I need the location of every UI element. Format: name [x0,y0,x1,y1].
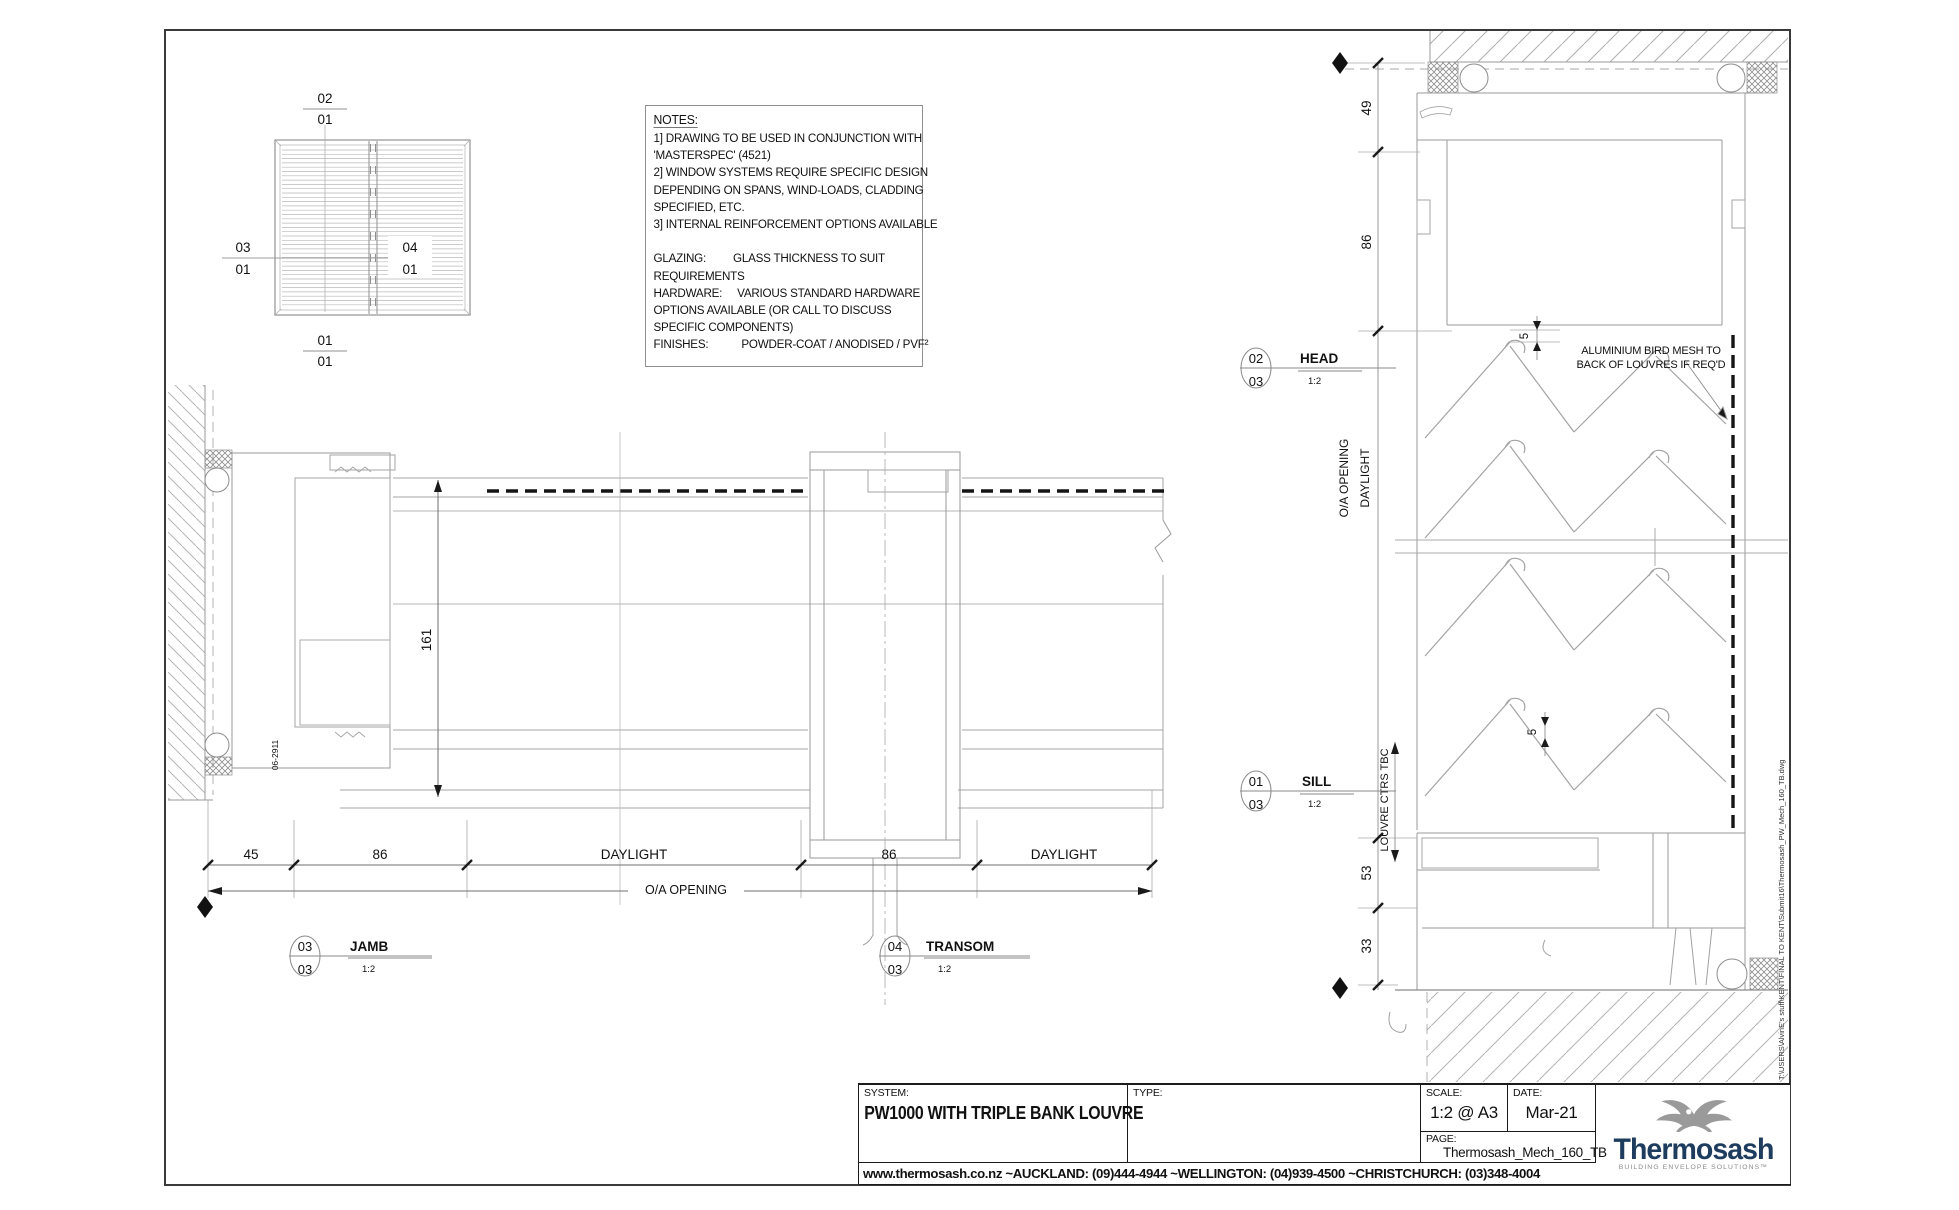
dim-daylight-a: DAYLIGHT [601,847,668,862]
thermosash-logo-text: Thermosash [1601,1137,1786,1163]
transom-callout-sheet: 03 [888,962,902,977]
page-value: Thermosash_Mech_160_TB [1421,1145,1595,1160]
title-block-page-cell: PAGE: Thermosash_Mech_160_TB [1421,1132,1596,1162]
head-callout-scale: 1:2 [1308,376,1321,387]
callout-left-sheet: 01 [235,262,250,277]
head-callout-num: 02 [1249,351,1263,366]
mullion-clip-marks [371,144,376,306]
bird-mesh-note: ALUMINIUM BIRD MESH TO BACK OF LOUVRES I… [1551,345,1751,372]
dim-45: 45 [243,847,258,862]
transom-callout-title: TRANSOM [926,939,994,954]
dim-5-sill: 5 [1527,729,1539,735]
callout-bottom-num: 01 [317,333,332,348]
wall-hatch [168,385,205,800]
callout-bottom-sheet: 01 [317,354,332,369]
title-block-scale-cell: SCALE: 1:2 @ A3 [1421,1085,1508,1132]
datum-diamond [1332,977,1348,999]
elevation-view [222,125,470,315]
page-label: PAGE: [1421,1132,1595,1145]
plan-detail-view [168,385,1171,1005]
title-block-date-cell: DATE: Mar-21 [1508,1085,1596,1132]
head-callout-sheet: 03 [1249,374,1263,389]
file-path-text: T:\USERS\AlvinE's stuff\KENT\FINAL TO KE… [1777,735,1786,1080]
type-label: TYPE: [1128,1085,1420,1099]
sill-callout: 01 03 SILL 1:2 [1240,771,1396,812]
title-block-logo-cell: Thermosash BUILDING ENVELOPE SOLUTIONS™ [1596,1085,1791,1185]
label-louvre-ctrs: LOUVRE CTRS TBC [1379,748,1391,851]
jamb-callout-title: JAMB [350,939,389,954]
transom-callout-num: 04 [888,939,902,954]
slab-hatch-bottom [1427,992,1788,1082]
callout-left-num: 03 [235,240,250,255]
sealant-hatch [205,450,232,468]
sill-callout-num: 01 [1249,774,1263,789]
jamb-frame [232,453,395,768]
transom-callout-scale: 1:2 [938,964,951,975]
dim-86-section: 86 [1359,234,1374,249]
scale-value: 1:2 @ A3 [1421,1099,1507,1123]
datum-diamond [197,896,213,918]
backer-rod [205,468,229,492]
slab-hatch-top [1430,31,1788,62]
louvre-blades [1425,340,1726,796]
louvre-bank-lines [340,478,1171,808]
date-value: Mar-21 [1508,1099,1595,1123]
transom-callout: 04 03 TRANSOM 1:2 [879,936,1030,977]
jamb-callout: 03 03 JAMB 1:2 [289,936,432,977]
dim-5-head: 5 [1519,333,1531,339]
sill-callout-title: SILL [1302,774,1331,789]
plan-dimensions: 45 86 DAYLIGHT 86 DAYLIGHT O/A OPENING 1… [197,480,1157,918]
system-label: SYSTEM: [859,1085,1127,1099]
jamb-callout-scale: 1:2 [362,964,375,975]
jamb-callout-num: 03 [298,939,312,954]
section-detail-view [1345,31,1788,1082]
thermosash-bird-icon [1649,1088,1739,1132]
backer-rod [205,733,229,757]
head-callout-title: HEAD [1300,351,1339,366]
title-block-footer-cell: www.thermosash.co.nz ~AUCKLAND: (09)444-… [859,1162,1596,1185]
system-value: PW1000 WITH TRIPLE BANK LOUVRE [859,1099,1095,1124]
title-block-type-cell: TYPE: . [1128,1085,1421,1162]
elevation-callouts: 02 01 03 01 04 01 01 01 [235,91,418,369]
dim-33: 33 [1359,938,1374,953]
label-oa-opening-v: O/A OPENING [1337,439,1351,518]
head-callout: 02 03 HEAD 1:2 [1240,348,1396,389]
callout-top-num: 02 [317,91,332,106]
title-block-system-cell: SYSTEM: PW1000 WITH TRIPLE BANK LOUVRE [859,1085,1128,1162]
part-label: 06-2911 [270,739,280,770]
callout-right-sheet: 01 [402,262,417,277]
dim-86a: 86 [372,847,387,862]
sill-callout-sheet: 03 [1249,797,1263,812]
callout-top-sheet: 01 [317,112,332,127]
jamb-callout-sheet: 03 [298,962,312,977]
dim-oa-opening: O/A OPENING [645,883,727,897]
sealant-hatch [205,757,232,775]
date-label: DATE: [1508,1085,1595,1099]
dim-86b: 86 [881,847,896,862]
dim-161: 161 [419,629,434,652]
label-daylight-v: DAYLIGHT [1358,448,1372,508]
drawing-sheet: 02 01 03 01 04 01 01 01 [0,0,1959,1210]
section-dimensions: 49 86 53 33 O/A OPENING DAYLIGHT LOUVRE … [1332,52,1560,999]
notes-text: 1] DRAWING TO BE USED IN CONJUNCTION WIT… [654,130,906,354]
head-frame [1417,93,1763,990]
dim-49: 49 [1359,100,1374,115]
type-value: . [1128,1099,1385,1124]
dim-daylight-b: DAYLIGHT [1031,847,1098,862]
sill-callout-scale: 1:2 [1308,799,1321,810]
callout-right-num: 04 [402,240,418,255]
contact-footer: www.thermosash.co.nz ~AUCKLAND: (09)444-… [859,1163,1596,1181]
cad-linework: 02 01 03 01 04 01 01 01 [0,0,1959,1210]
notes-title: NOTES: [654,112,698,128]
datum-diamond [1332,52,1348,74]
notes-box: NOTES: 1] DRAWING TO BE USED IN CONJUNCT… [645,105,923,367]
scale-label: SCALE: [1421,1085,1507,1099]
dim-53: 53 [1359,865,1374,880]
title-block: SYSTEM: PW1000 WITH TRIPLE BANK LOUVRE T… [858,1083,1790,1184]
